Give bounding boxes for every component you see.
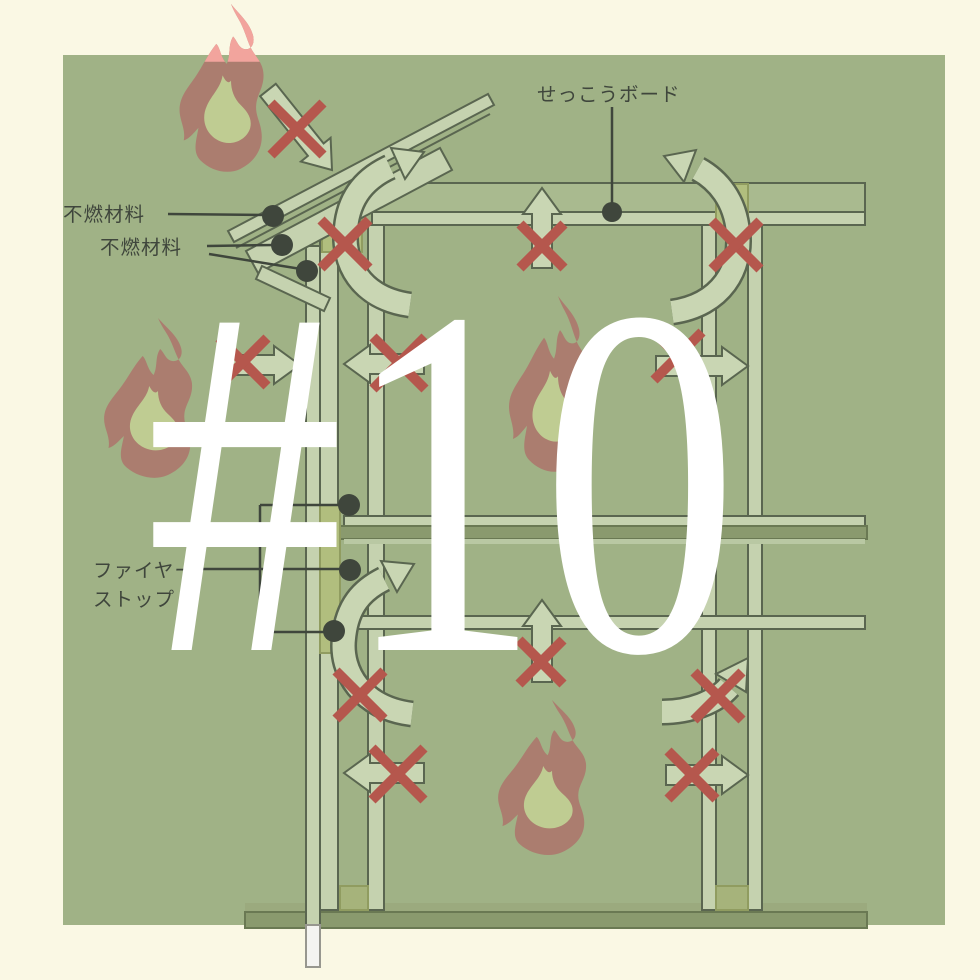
fire-blocking-diagram: せっこうボード 不燃材料 不燃材料 ファイヤー ストップ #10 [0, 0, 980, 980]
issue-number: #10 [146, 205, 738, 759]
framing-member [748, 225, 762, 910]
framing-member [245, 912, 867, 928]
label-gypsum-board: せっこうボード [537, 84, 681, 106]
framing-member [340, 886, 368, 910]
label-noncombustible-1: 不燃材料 [63, 204, 145, 226]
framing-member [716, 886, 748, 910]
framing-member [306, 925, 320, 967]
poster-canvas: せっこうボード 不燃材料 不燃材料 ファイヤー ストップ #10 [0, 0, 980, 980]
